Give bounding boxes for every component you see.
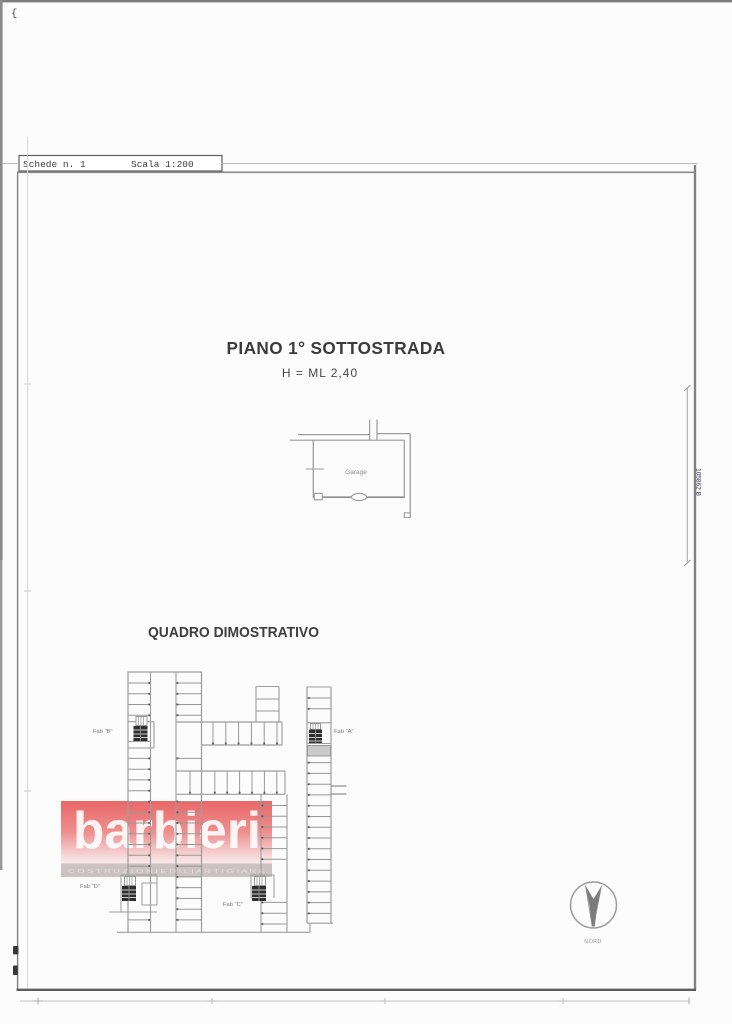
svg-text:105862 B: 105862 B xyxy=(695,468,702,496)
svg-text:barbieri: barbieri xyxy=(73,802,261,860)
svg-text:NORD: NORD xyxy=(584,939,601,945)
svg-text:Garage: Garage xyxy=(345,469,367,476)
svg-text:C O S T R U Z I O N I E D I: C O S T R U Z I O N I E D I L I A R T I … xyxy=(68,869,266,875)
svg-text:Schede n. 1: Schede n. 1 xyxy=(23,159,86,170)
svg-text:H = ML 2,40: H = ML 2,40 xyxy=(282,366,358,380)
svg-text:Fab "B": Fab "B" xyxy=(93,729,113,735)
svg-text:{: { xyxy=(11,8,17,20)
svg-text:Fab "D": Fab "D" xyxy=(80,884,100,890)
svg-text:Fab "A": Fab "A" xyxy=(334,729,354,735)
svg-text:Fab "C": Fab "C" xyxy=(223,902,243,908)
svg-text:PIANO 1° SOTTOSTRADA: PIANO 1° SOTTOSTRADA xyxy=(227,338,446,358)
svg-text:Scala 1:200: Scala 1:200 xyxy=(131,159,194,170)
svg-text:QUADRO DIMOSTRATIVO: QUADRO DIMOSTRATIVO xyxy=(148,625,319,641)
